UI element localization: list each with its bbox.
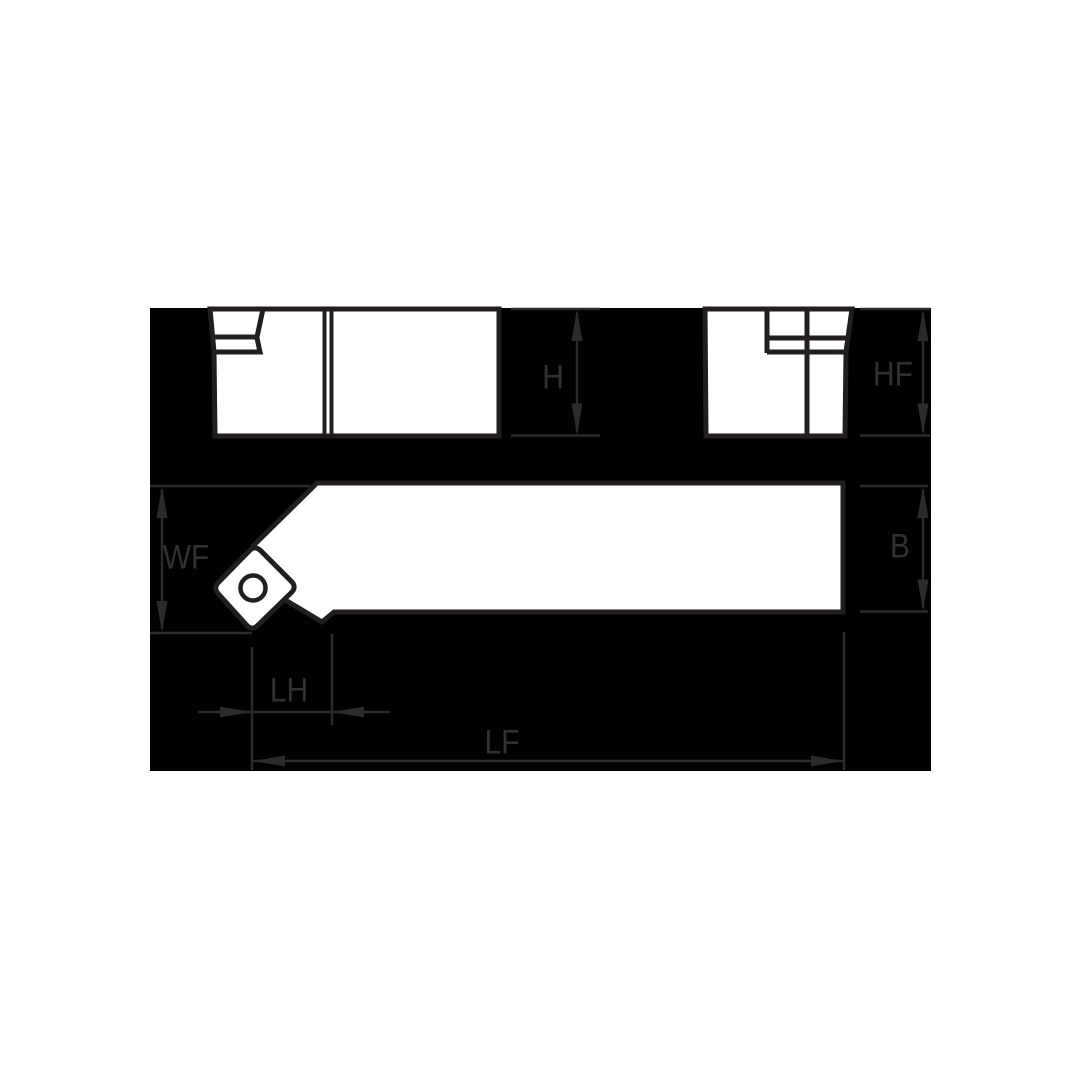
front-view <box>705 309 852 436</box>
top-view-holder-body <box>253 483 843 622</box>
dim-h-label: H <box>542 358 564 396</box>
dim-lf-label: LF <box>485 723 520 761</box>
insert-screw-hole <box>241 576 266 601</box>
dim-b-label: B <box>890 527 910 565</box>
dim-lh-label: LH <box>270 671 308 709</box>
technical-drawing-page: H HF <box>0 0 1080 1080</box>
side-view-body <box>210 309 499 436</box>
side-view <box>210 309 499 436</box>
tool-holder-drawing: H HF <box>0 0 1080 1080</box>
front-view-body <box>705 309 852 436</box>
dim-wf-label: WF <box>163 538 210 576</box>
top-view <box>216 483 843 628</box>
dim-hf-label: HF <box>873 355 913 393</box>
